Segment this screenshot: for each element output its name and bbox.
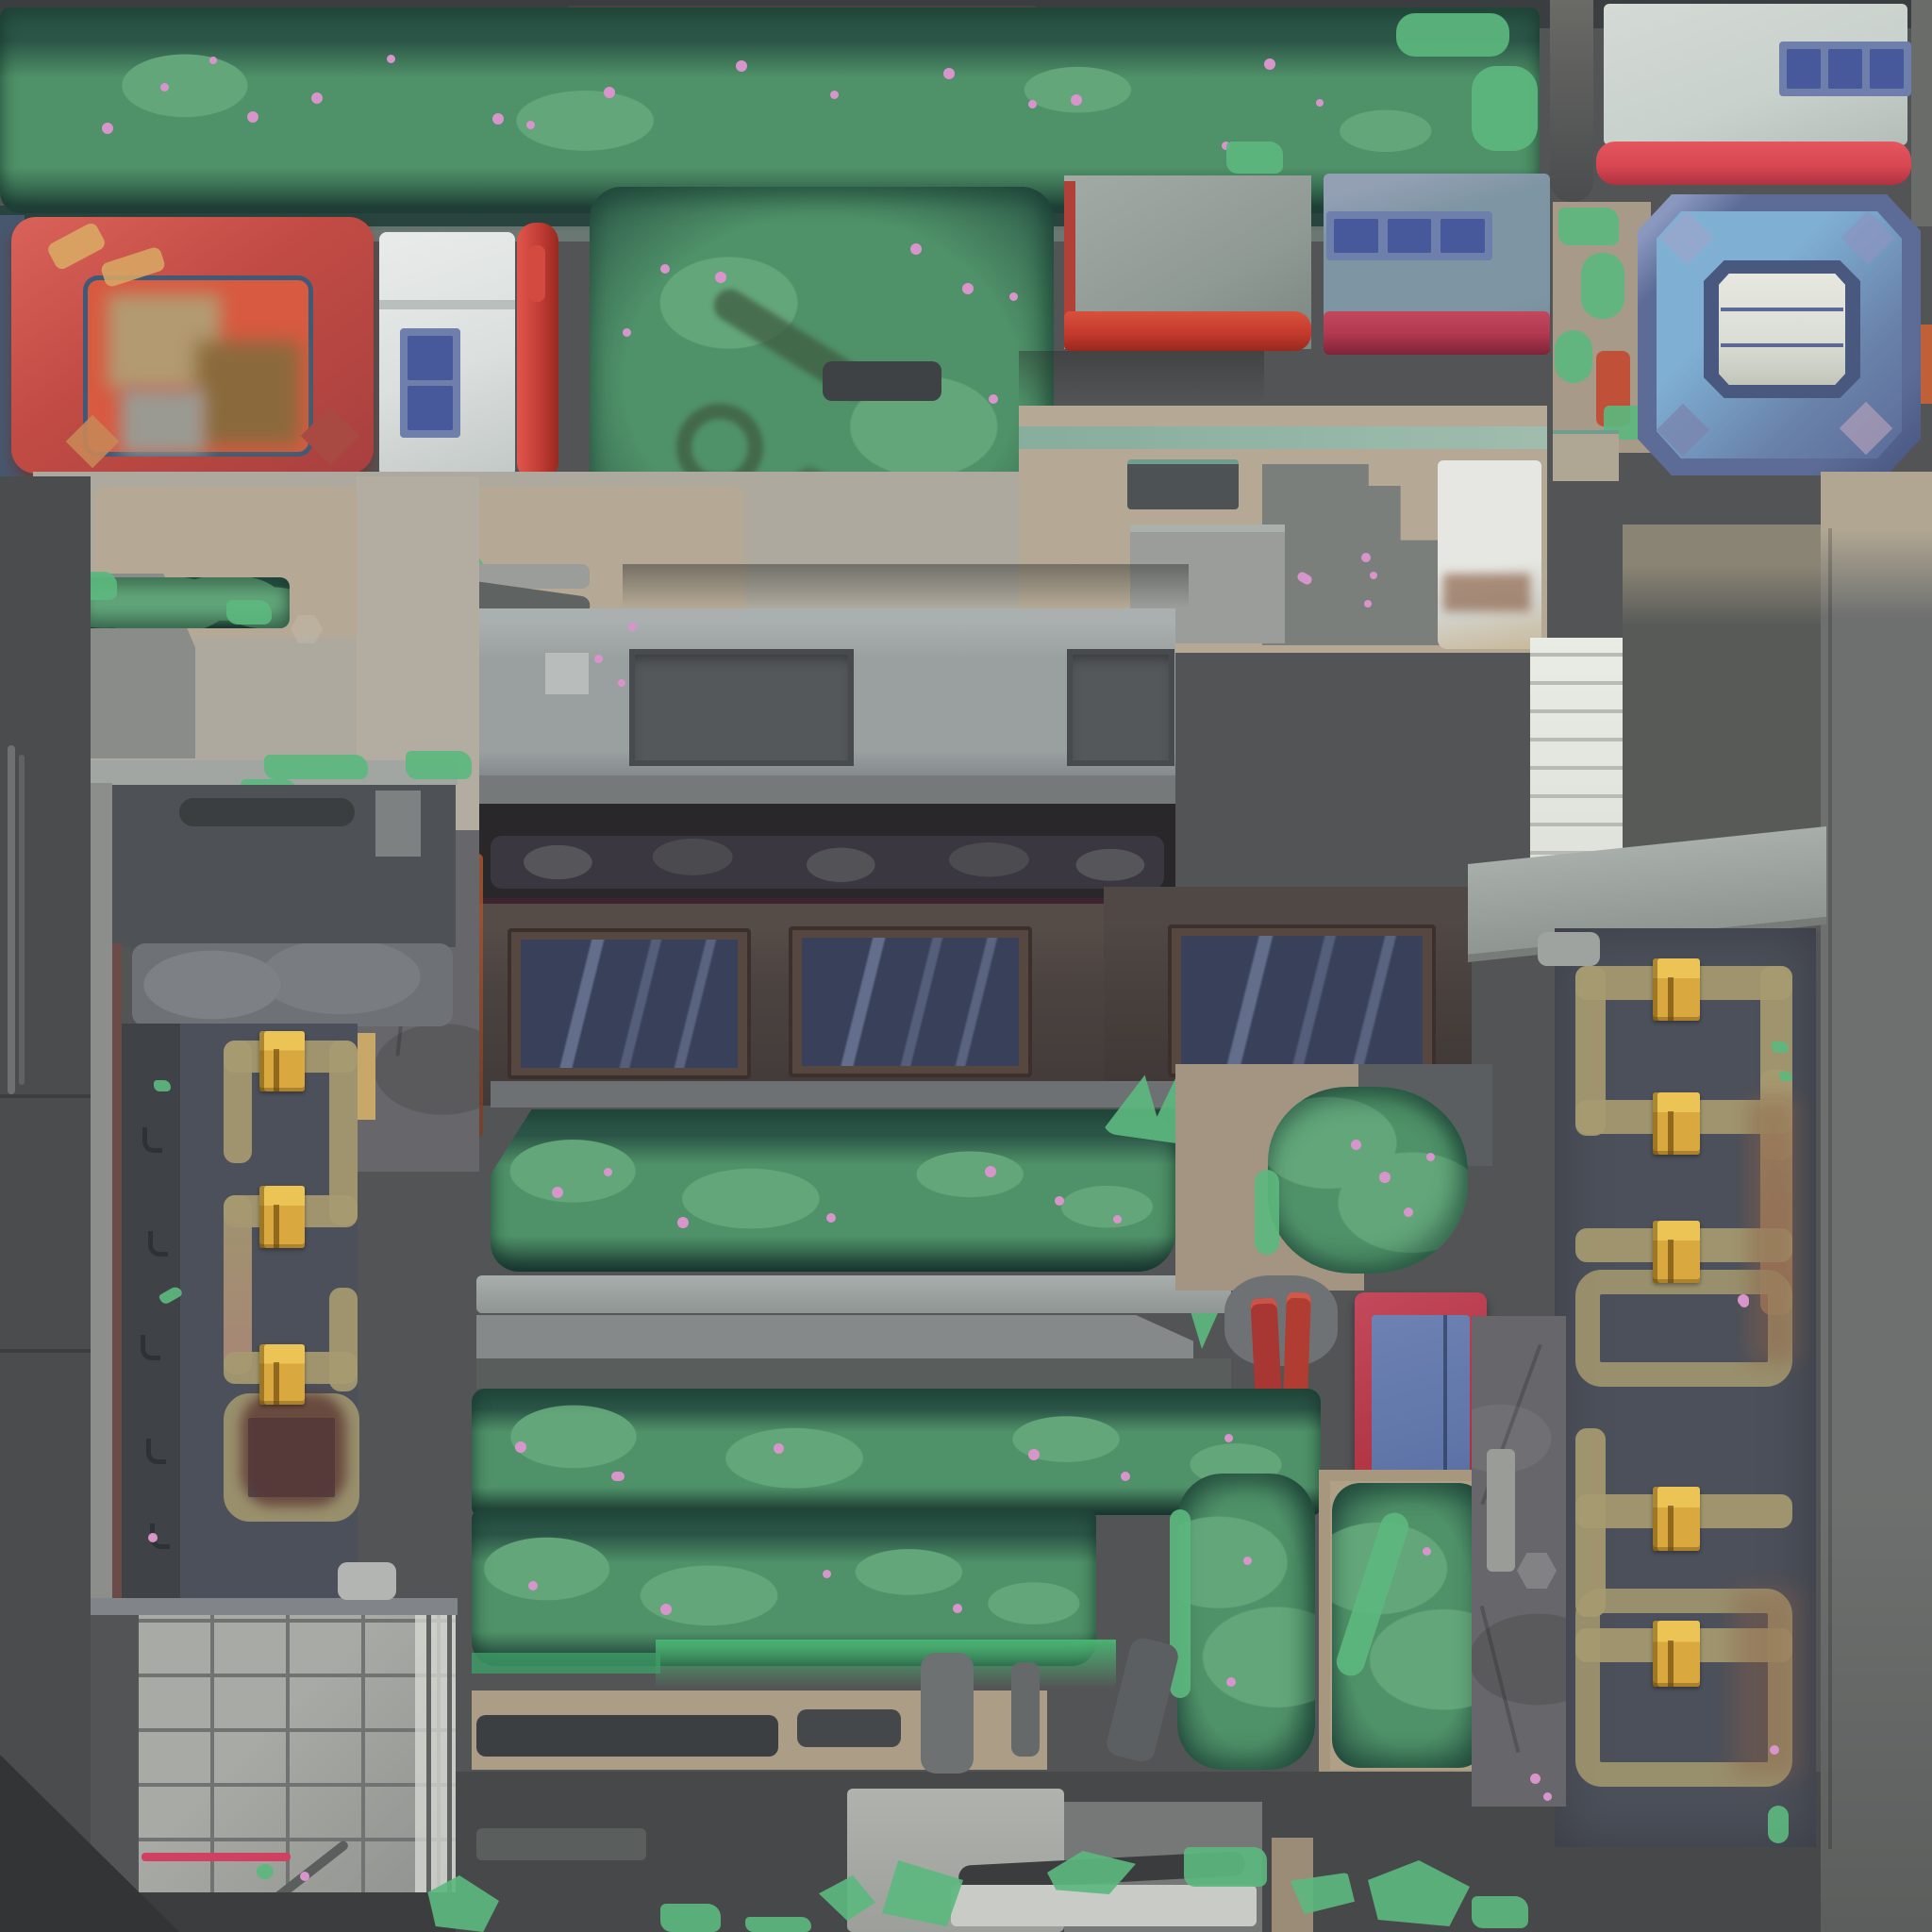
hook-mark: [142, 1127, 162, 1153]
sprig: [1555, 330, 1592, 383]
flower-dot: [1113, 1215, 1122, 1224]
cast-shadow: [623, 564, 1189, 608]
sprig: [1558, 208, 1619, 245]
red-handle: [1283, 1292, 1311, 1399]
gray-post: [375, 791, 421, 857]
gem-window-mullion: [1721, 343, 1843, 347]
flower-dot: [1530, 1774, 1541, 1784]
hedge-sprig: [1472, 66, 1538, 151]
flower-dot: [552, 1187, 563, 1198]
stone-wall-right: [1472, 1316, 1566, 1807]
flower-dot: [1264, 58, 1275, 70]
window-pane: [1870, 49, 1904, 89]
flower-dot: [943, 68, 955, 79]
flower-dot: [526, 121, 535, 129]
flower-dot: [1423, 1547, 1431, 1556]
margin-seam: [0, 1094, 91, 1098]
left-panel-light-strip: [90, 783, 112, 1600]
hedge-sprig: [1226, 142, 1283, 174]
hook-mark: [141, 1335, 160, 1360]
flower-dot: [209, 57, 217, 64]
left-panel-bottom-bar: [90, 1598, 458, 1615]
flower-dot: [1224, 1434, 1233, 1442]
flower-dot: [1543, 1792, 1552, 1801]
flower-dot: [604, 87, 615, 98]
sprig: [226, 600, 272, 625]
walkway-rail-bottom: [476, 1358, 1231, 1389]
stone-slab-band: [132, 943, 453, 1026]
moss-patch: [264, 755, 368, 779]
moss-speck: [154, 1080, 171, 1091]
flower-dot: [953, 1604, 962, 1613]
moss-patch: [660, 1904, 721, 1932]
moss-patch: [1184, 1847, 1267, 1887]
flower-dot: [985, 1166, 996, 1177]
sheet-rust-streak: [1443, 574, 1530, 611]
flower-dot: [515, 1441, 526, 1453]
hook-mark: [146, 1439, 166, 1464]
round-bush: [1268, 1087, 1468, 1274]
flower-dot: [660, 1604, 672, 1615]
flower-dot: [1226, 1677, 1236, 1687]
flower-dot: [618, 679, 625, 687]
bottom-left-bar: [476, 1828, 646, 1860]
flower-dot: [160, 83, 169, 92]
rust-tint: [1749, 1098, 1798, 1362]
moss-patch: [745, 1917, 811, 1932]
hedge-underglow: [472, 1653, 660, 1674]
flower-dot: [1121, 1472, 1130, 1481]
flower-dot: [611, 1472, 625, 1481]
margin-seam: [0, 1349, 91, 1353]
hedge-row-1: [491, 1109, 1175, 1272]
hedge-sprig: [1396, 13, 1509, 57]
interior-blur-shape: [121, 389, 206, 455]
flower-dot: [1404, 1207, 1413, 1217]
flower-dot: [989, 394, 998, 404]
right-edge-column: [1911, 0, 1932, 226]
tan-corner: [1553, 430, 1619, 481]
orn-bar: [224, 1195, 252, 1374]
interior-blur-shape: [196, 341, 300, 445]
flower-dot: [528, 1581, 538, 1591]
tan-band-dark-blob: [797, 1709, 901, 1747]
flower-dot: [1071, 94, 1082, 106]
tan-band-dark-blob: [476, 1715, 778, 1757]
golden-clasp: [1653, 1221, 1700, 1283]
flower-dot: [1028, 1449, 1040, 1460]
grid-double-line: [447, 1615, 452, 1892]
golden-clasp: [1653, 958, 1700, 1021]
gray-rooftop-red-stripe: [1064, 311, 1311, 351]
flower-dot: [677, 1217, 689, 1228]
orange-sliver: [1921, 325, 1932, 404]
window-pane: [1388, 219, 1432, 253]
roof-ledge: [479, 775, 1175, 804]
hedge-underglow: [656, 1640, 1116, 1689]
window-pane: [1441, 219, 1485, 253]
roof-step-notch: [545, 653, 589, 694]
facade-ledge: [491, 1081, 1175, 1108]
golden-clasp: [1653, 1487, 1700, 1551]
margin-pipe: [19, 755, 25, 1085]
window-pane: [1787, 49, 1821, 89]
sprig: [1581, 253, 1624, 319]
flower-dot: [387, 55, 395, 63]
light-slab-strip: [1487, 1449, 1515, 1572]
blue-gem-window: [1719, 274, 1845, 385]
flower-dot: [1770, 1745, 1779, 1755]
dark-rounded-bar: [179, 798, 355, 826]
flower-dot: [715, 272, 726, 283]
blue-gray-rooftop-crimson-stripe: [1324, 311, 1550, 355]
flower-dot: [623, 328, 631, 337]
walkway-rail-mid: [476, 1315, 1193, 1358]
window-pane: [408, 336, 453, 380]
far-right-column: [1821, 472, 1932, 1932]
flower-dot: [1028, 100, 1037, 108]
flower-dot: [148, 1533, 158, 1542]
rust-blob: [241, 1393, 346, 1507]
facade-window-glass: [802, 938, 1019, 1066]
flower-dot: [1055, 1196, 1064, 1206]
flower-dot: [830, 91, 839, 99]
golden-clasp: [259, 1344, 305, 1405]
rounded-tab: [338, 1562, 396, 1600]
kiosk-ledge: [379, 300, 515, 309]
hook-mark: [148, 1231, 168, 1257]
left-panel-maroon-line: [112, 943, 122, 1600]
walkway-rail-top: [476, 1275, 1231, 1313]
red-pillar-notch: [528, 245, 545, 302]
orn-bar: [224, 1041, 252, 1163]
flower-dot: [492, 113, 504, 125]
flower-dot: [102, 123, 113, 134]
gem-window-mullion: [1721, 308, 1843, 311]
dark-slab: [823, 361, 941, 401]
facade-window: [1168, 924, 1436, 1077]
cast-shadow: [1019, 351, 1264, 404]
window-pane: [1828, 49, 1862, 89]
red-handle: [1250, 1297, 1281, 1396]
golden-clasp: [1653, 1092, 1700, 1155]
moss-patch: [1472, 1896, 1528, 1928]
gray-rooftop-left-red-edge: [1064, 181, 1075, 323]
flower-dot: [628, 623, 637, 631]
panel-hinge-strip: [122, 1024, 180, 1599]
left-margin: [0, 476, 91, 1932]
dark-slab-teal-edge: [1127, 459, 1239, 509]
moss-speck: [1772, 1041, 1789, 1053]
red-gate-opening: [83, 275, 313, 457]
light-rooftop-red-stripe: [1596, 142, 1911, 185]
grid-red-line: [142, 1853, 291, 1861]
roof-vent: [629, 649, 854, 766]
teal-glass-band: [1019, 426, 1547, 449]
ornamental-door-left: [122, 1024, 358, 1599]
tile-grid-skylight: [139, 1615, 456, 1892]
flower-dot: [1426, 1153, 1435, 1161]
flower-dot: [660, 264, 670, 274]
ridge-rock-band: [491, 836, 1164, 889]
bush-column: [1177, 1474, 1315, 1770]
facade-window: [789, 926, 1032, 1077]
bottom-small-post: [1011, 1662, 1040, 1757]
flower-dot: [910, 243, 922, 255]
flower-dot: [1361, 553, 1371, 562]
facade-window-glass: [521, 940, 738, 1068]
roof-vent: [1067, 649, 1174, 766]
moss-speck: [1779, 1072, 1792, 1081]
flower-dot: [962, 283, 974, 294]
ornamental-door-right: [1555, 928, 1816, 1847]
blue-gray-rooftop-window: [1326, 211, 1492, 260]
flower-dot: [1243, 1557, 1252, 1565]
flower-dot: [1364, 600, 1372, 608]
moss-speck: [257, 1864, 274, 1879]
panel-tab: [1538, 932, 1600, 966]
flower-dot: [1738, 1294, 1749, 1306]
flower-dot: [1316, 99, 1324, 107]
window-pane: [408, 386, 453, 430]
flower-dot: [1370, 572, 1377, 579]
door-shadow-blob: [1224, 1275, 1338, 1366]
margin-pipe: [8, 745, 15, 1094]
kiosk-window: [400, 328, 460, 438]
flower-dot: [1379, 1172, 1391, 1183]
flower-dot: [300, 1872, 309, 1881]
bush-bright-edge: [1255, 1170, 1279, 1255]
moss-patch: [406, 751, 472, 779]
flower-dot: [604, 1168, 612, 1176]
flower-dot: [247, 111, 258, 123]
column-seam: [1828, 528, 1832, 1849]
golden-clasp: [259, 1031, 305, 1091]
flower-dot: [736, 60, 747, 72]
flower-dot: [311, 92, 323, 104]
flower-dot: [1351, 1140, 1361, 1150]
flower-dot: [594, 655, 603, 663]
facade-window-glass: [1181, 936, 1423, 1066]
light-rooftop-window: [1779, 42, 1911, 96]
flower-dot: [1009, 292, 1018, 301]
gold-tab: [357, 1033, 375, 1120]
golden-clasp: [1653, 1621, 1700, 1687]
flower-dot: [774, 1443, 784, 1454]
golden-clasp: [259, 1186, 305, 1248]
bottom-gray-post: [921, 1653, 974, 1774]
flower-dot: [823, 1570, 831, 1578]
map-canvas: [0, 0, 1932, 1932]
moss-speck: [1768, 1806, 1789, 1843]
facade-window: [508, 928, 751, 1079]
grid-double-line: [426, 1615, 431, 1892]
dark-post: [1550, 0, 1593, 202]
white-sheet: [1438, 460, 1541, 649]
window-pane: [1334, 219, 1378, 253]
flower-dot: [826, 1213, 836, 1223]
rust-tint: [1734, 1589, 1800, 1777]
